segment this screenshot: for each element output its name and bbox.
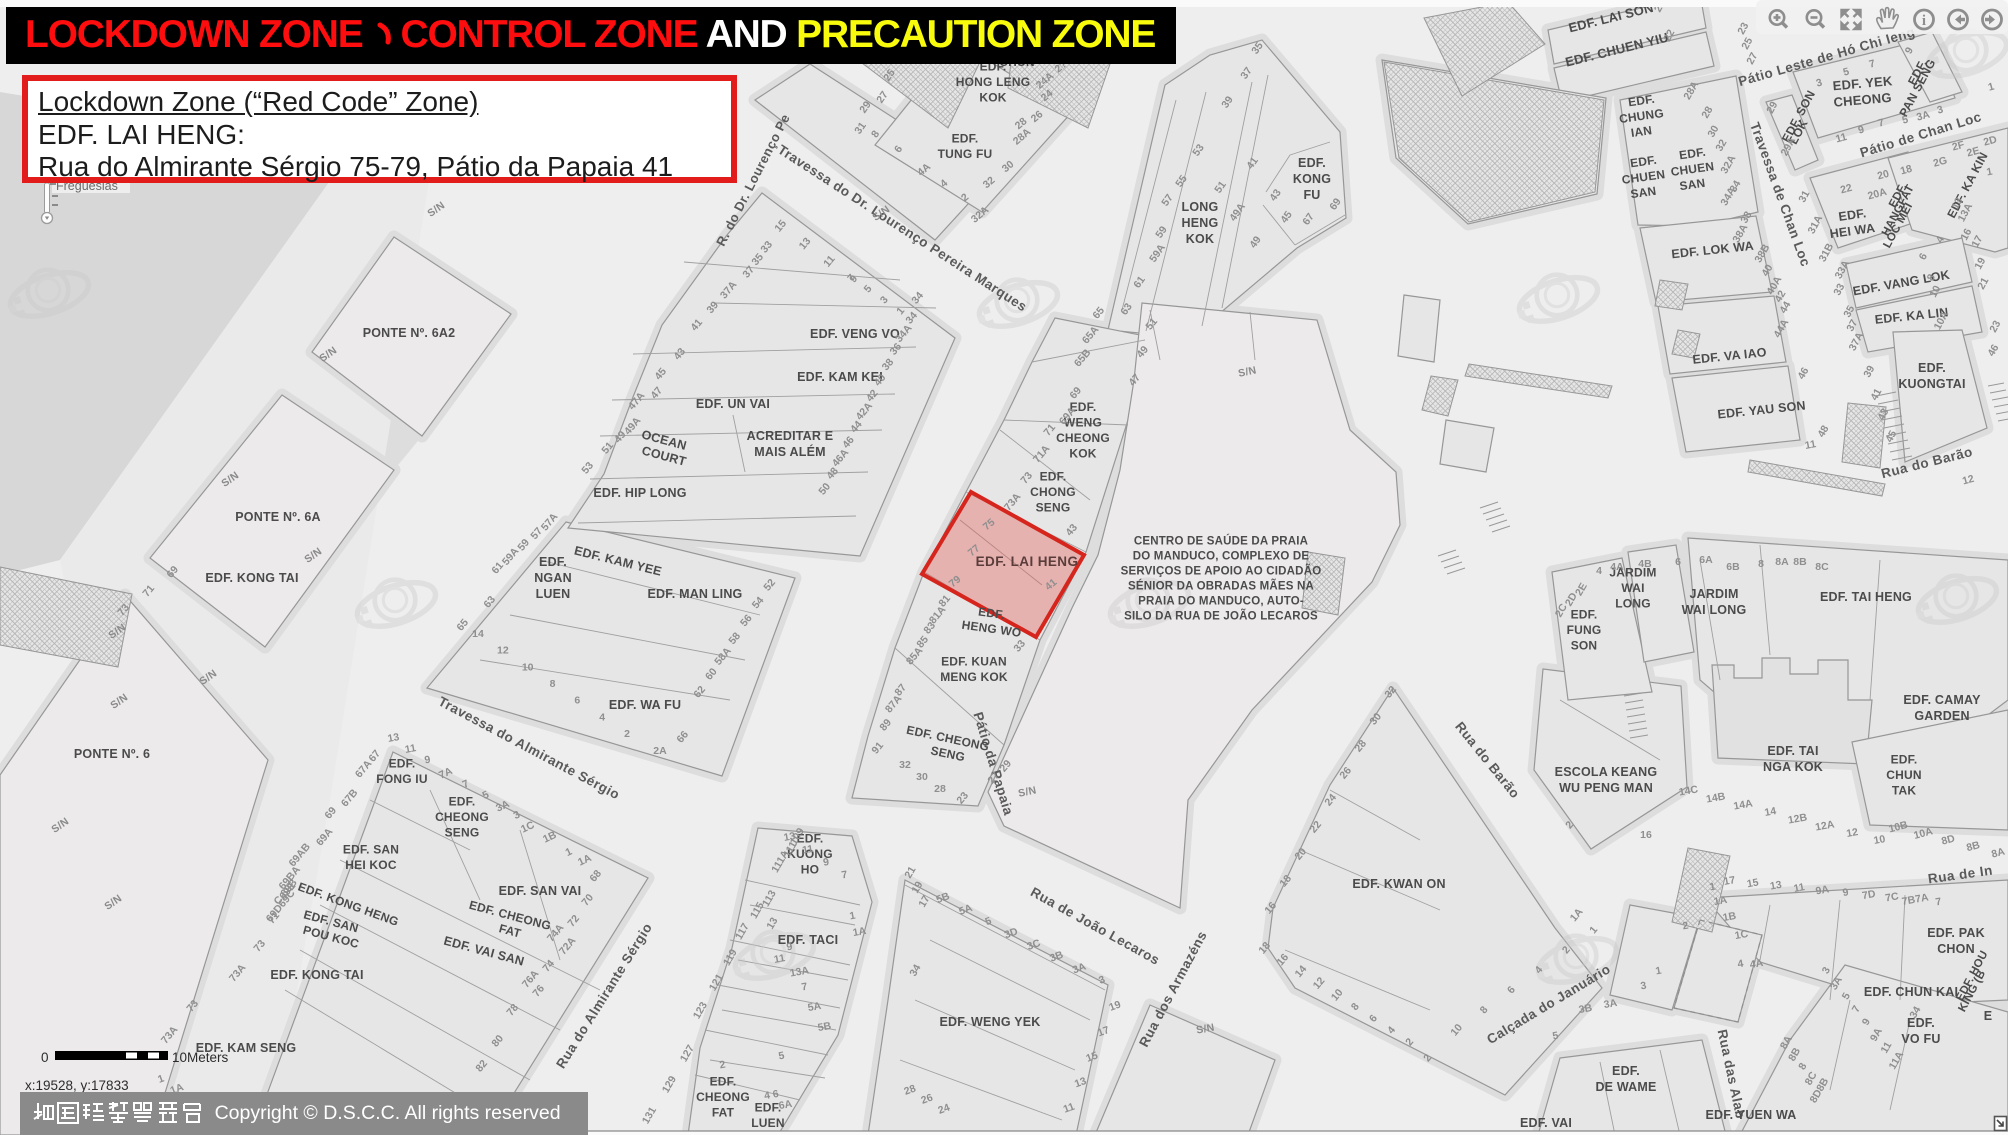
svg-text:2: 2 [624,728,630,740]
svg-text:PRAIA DO MANDUCO, AUTO-: PRAIA DO MANDUCO, AUTO- [1138,596,1304,608]
svg-text:LONG: LONG [1182,200,1219,214]
svg-text:WAI: WAI [1621,581,1644,595]
svg-text:KOK: KOK [979,91,1006,105]
svg-text:EDF. WENG YEK: EDF. WENG YEK [940,1015,1041,1029]
svg-text:EDF.: EDF. [1612,1064,1640,1078]
svg-text:FU: FU [1303,188,1320,202]
svg-text:EDF.: EDF. [1907,1016,1935,1030]
svg-text:8: 8 [1758,558,1764,570]
svg-text:0: 0 [41,1050,49,1065]
svg-text:11: 11 [1804,438,1817,452]
svg-text:5A: 5A [807,1000,823,1014]
svg-text:SILO DA RUA DE JOÃO LECAROS: SILO DA RUA DE JOÃO LECAROS [1124,610,1318,623]
svg-text:EDF. VAI: EDF. VAI [1520,1116,1572,1130]
svg-text:EDF. VENG VO: EDF. VENG VO [810,327,900,341]
svg-text:EDF.: EDF. [952,131,979,145]
svg-text:EDF. CHUN KAI: EDF. CHUN KAI [1864,985,1958,999]
svg-text:EDF. SAN: EDF. SAN [343,842,399,856]
svg-text:13: 13 [387,731,401,745]
svg-text:SENG: SENG [445,826,480,840]
svg-text:1C: 1C [1734,928,1750,942]
svg-text:11: 11 [1793,881,1806,895]
svg-text:DO MANDUCO, COMPLEXO DE: DO MANDUCO, COMPLEXO DE [1133,551,1310,563]
svg-text:FONG IU: FONG IU [376,772,427,786]
svg-text:30: 30 [916,771,928,783]
svg-text:EDF.: EDF. [539,555,567,569]
svg-text:EDF. WA FU: EDF. WA FU [609,698,681,712]
svg-text:EDF.: EDF. [1891,753,1918,767]
svg-text:6A: 6A [1699,554,1713,566]
svg-text:CHEONG: CHEONG [1056,431,1110,445]
svg-text:EDF.: EDF. [449,795,476,809]
svg-text:VO FU: VO FU [1901,1032,1940,1046]
svg-text:4B: 4B [1638,558,1652,570]
svg-text:CENTRO DE SAÚDE DA PRAIA: CENTRO DE SAÚDE DA PRAIA [1134,535,1308,548]
svg-text:3A: 3A [1603,997,1619,1011]
svg-text:MENG KOK: MENG KOK [940,670,1008,684]
svg-text:FUNG: FUNG [1567,623,1602,637]
svg-text:10: 10 [1873,833,1887,847]
svg-text:PONTE Nº. 6A: PONTE Nº. 6A [235,510,320,524]
svg-text:GARDEN: GARDEN [1914,709,1969,723]
svg-text:EDF. KONG TAI: EDF. KONG TAI [205,571,298,585]
svg-text:15: 15 [1746,876,1760,890]
svg-text:13: 13 [1769,879,1783,893]
svg-text:EDF. CAMAY: EDF. CAMAY [1903,693,1981,707]
svg-text:TAK: TAK [1892,784,1917,798]
svg-text:HENG: HENG [1182,216,1219,230]
svg-text:EDF. UN VAI: EDF. UN VAI [696,397,770,411]
svg-text:6B: 6B [1726,561,1740,573]
svg-text:SENG: SENG [1036,501,1071,515]
svg-text:EDF.: EDF. [1040,470,1067,484]
svg-text:12: 12 [1845,826,1859,840]
svg-text:FAT: FAT [712,1106,735,1120]
svg-text:7D: 7D [1861,888,1877,902]
svg-text:HEI KOC: HEI KOC [345,858,397,872]
svg-text:EDF. KUAN: EDF. KUAN [941,654,1007,668]
svg-text:1B: 1B [1722,910,1738,924]
svg-text:14: 14 [1764,805,1778,819]
svg-text:HO: HO [801,863,819,877]
svg-text:10Meters: 10Meters [172,1050,229,1065]
svg-text:4: 4 [1596,565,1602,577]
svg-text:CHEONG: CHEONG [435,810,489,824]
svg-text:EDF. KONG TAI: EDF. KONG TAI [270,968,363,982]
svg-text:EDF. KWAN ON: EDF. KWAN ON [1352,877,1445,891]
svg-text:EDF.: EDF. [710,1075,737,1089]
svg-text:8A: 8A [1775,556,1789,568]
svg-text:DE WAME: DE WAME [1595,1080,1656,1094]
svg-text:E: E [1984,1009,1993,1023]
svg-text:IAN: IAN [1630,123,1653,140]
svg-text:EDF. YUEN WA: EDF. YUEN WA [1705,1108,1796,1122]
svg-text:16: 16 [1640,829,1652,841]
svg-text:EDF. TAI HENG: EDF. TAI HENG [1820,590,1912,604]
svg-text:EDF.: EDF. [1298,156,1326,170]
svg-text:LONG: LONG [1615,597,1650,611]
svg-text:8: 8 [550,678,556,690]
svg-text:11: 11 [801,843,814,857]
svg-text:1A: 1A [852,925,868,939]
svg-text:WAI LONG: WAI LONG [1682,603,1747,617]
svg-text:EDF. PAK: EDF. PAK [1927,926,1985,940]
svg-text:4A: 4A [1610,561,1624,573]
svg-text:EDF. LAI HENG: EDF. LAI HENG [976,554,1079,569]
svg-text:EDF. TAI: EDF. TAI [1767,744,1818,758]
svg-text:EDF.: EDF. [1571,608,1598,622]
svg-text:CHUN: CHUN [1886,768,1921,782]
svg-text:32: 32 [899,759,911,771]
svg-text:TUNG FU: TUNG FU [938,147,993,161]
svg-text:SERVIÇOS DE APOIO AO CIDADÃO: SERVIÇOS DE APOIO AO CIDADÃO [1121,565,1322,578]
svg-text:ACREDITAR E: ACREDITAR E [747,429,834,443]
svg-text:8B: 8B [1793,556,1807,568]
svg-text:NGA KOK: NGA KOK [1763,760,1823,774]
svg-text:14: 14 [472,628,484,640]
svg-text:7C: 7C [1884,890,1900,904]
svg-text:11: 11 [404,742,417,756]
svg-text:x:19528, y:17833: x:19528, y:17833 [25,1078,129,1093]
svg-text:KUONGTAI: KUONGTAI [1898,377,1965,391]
svg-text:EDF. HIP LONG: EDF. HIP LONG [593,486,686,500]
svg-text:i: i [1922,13,1926,29]
svg-text:6: 6 [1675,556,1681,568]
svg-text:CHEONG: CHEONG [696,1090,750,1104]
svg-text:11: 11 [773,952,786,966]
svg-text:4A: 4A [1749,957,1765,971]
svg-text:EDF. KAM KEI: EDF. KAM KEI [797,370,883,384]
svg-text:ESCOLA KEANG: ESCOLA KEANG [1555,765,1658,779]
svg-text:CHON: CHON [1937,942,1975,956]
svg-text:EDF.: EDF. [1918,361,1946,375]
svg-text:KONG: KONG [1293,172,1331,186]
svg-text:10: 10 [522,661,534,673]
svg-text:17: 17 [1723,874,1737,888]
svg-text:KOK: KOK [1186,232,1214,246]
svg-text:8C: 8C [1815,561,1829,573]
svg-text:HONG LENG: HONG LENG [956,75,1030,89]
svg-text:CHONG: CHONG [1030,485,1076,499]
svg-text:9A: 9A [1815,883,1831,897]
svg-text:EDF. MAN LING: EDF. MAN LING [648,587,743,601]
svg-text:MAIS ALÉM: MAIS ALÉM [754,444,825,459]
svg-text:PONTE Nº. 6: PONTE Nº. 6 [74,747,150,761]
svg-text:2A: 2A [653,745,667,757]
svg-text:EDF. SAN VAI: EDF. SAN VAI [499,884,582,898]
svg-text:LUEN: LUEN [751,1116,784,1130]
svg-text:SÉNIOR DA OBRADAS MÃES NA: SÉNIOR DA OBRADAS MÃES NA [1128,580,1314,593]
svg-text:JARDIM: JARDIM [1689,587,1738,601]
svg-text:PONTE Nº. 6A2: PONTE Nº. 6A2 [363,326,456,340]
svg-text:SON: SON [1571,639,1598,653]
svg-text:28: 28 [934,783,946,795]
svg-text:EDF.: EDF. [389,756,416,770]
svg-text:KOK: KOK [1069,446,1096,460]
svg-text:WU PENG MAN: WU PENG MAN [1559,781,1653,795]
svg-text:NGAN: NGAN [534,571,572,585]
svg-text:5B: 5B [817,1020,833,1034]
svg-text:3B: 3B [1578,1002,1594,1016]
svg-text:LUEN: LUEN [536,587,571,601]
svg-text:1A: 1A [1713,894,1729,908]
svg-text:6A: 6A [778,1098,794,1112]
svg-text:4: 4 [599,711,605,723]
svg-text:6: 6 [574,695,580,707]
svg-text:12: 12 [497,645,509,657]
